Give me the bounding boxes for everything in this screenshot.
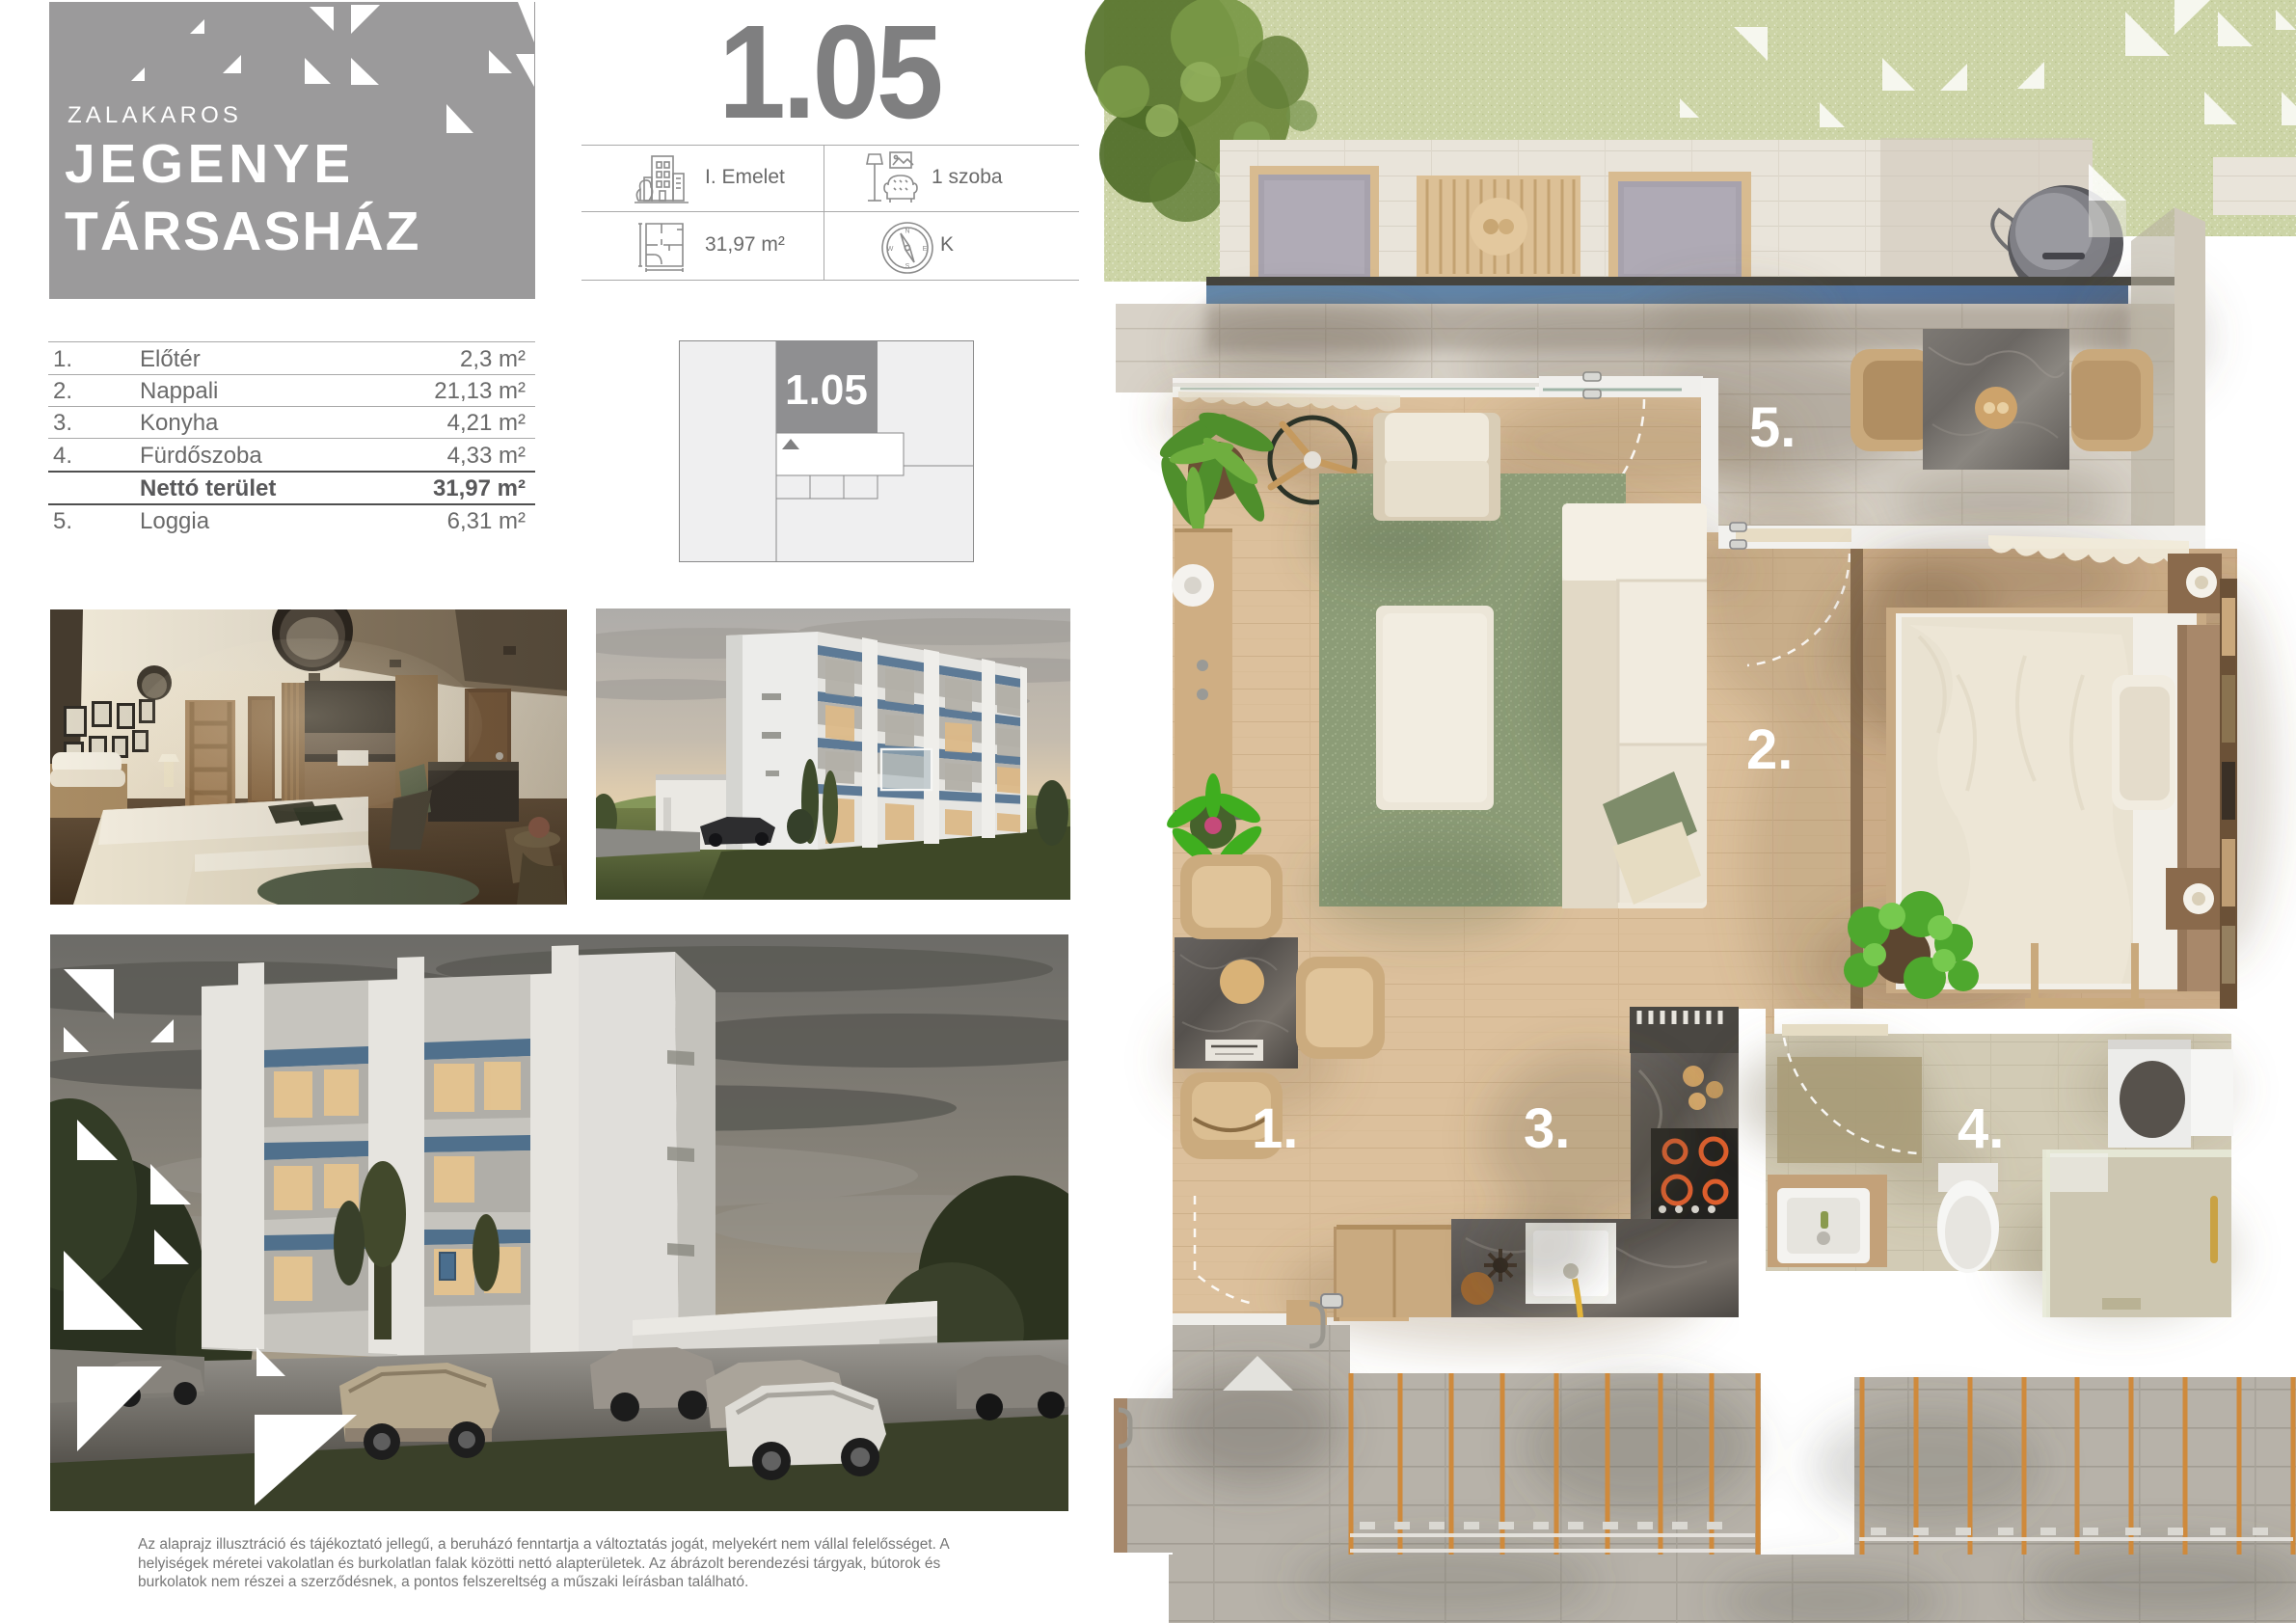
svg-text:5.: 5. [1749,396,1796,459]
svg-text:2.: 2. [1746,718,1793,781]
svg-text:3.: 3. [1524,1097,1570,1160]
svg-text:1.05: 1.05 [785,366,868,414]
svg-text:W: W [887,246,894,253]
svg-text:E: E [923,246,928,253]
svg-text:1.: 1. [1252,1097,1298,1160]
svg-text:S: S [905,263,910,270]
svg-text:N: N [905,229,909,235]
svg-text:4.: 4. [1958,1097,2004,1160]
